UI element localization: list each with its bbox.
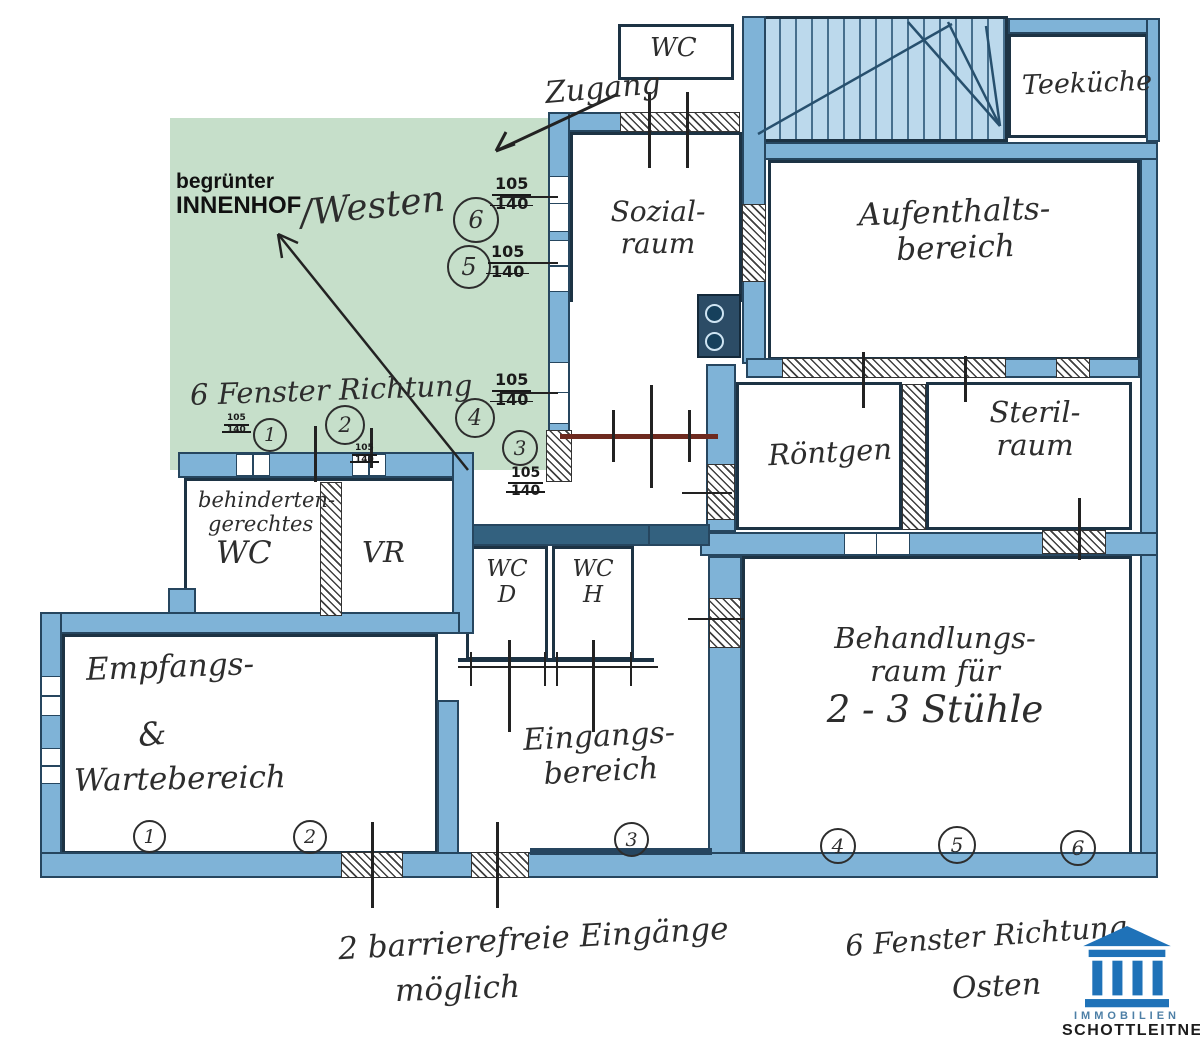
corridor-tick-3 [688,410,691,462]
wall-vr-right [452,452,474,634]
window1-axis [314,426,317,482]
marker-2: 2 [293,820,327,854]
entrance-axis-1 [371,822,374,908]
wall-below-stairs [746,142,1158,160]
wcdh-axis-2 [592,640,595,732]
window-dim-n2: 105 140 [352,444,377,466]
temple-icon [1081,926,1173,1010]
wall-roentgen-steril [902,384,926,530]
window-marker-4: 4 [455,398,495,438]
door-sozial-aufenthalt [742,204,766,282]
courtyard-label-line2: INNENHOF [176,193,301,219]
zugang-axis-2 [686,92,689,168]
wall-sozial-aufenthalt [742,16,766,364]
window-marker-n2: 2 [325,405,365,445]
marker-1: 1 [133,820,166,853]
window-empfang-left-2 [41,748,61,784]
eingang-label: Eingangs- bereich [488,714,711,794]
sozialraum-label: Sozial- raum [578,196,738,260]
behandlung-dim [688,618,744,620]
wc-top-label: WC [650,34,697,64]
window-marker-3: 3 [502,430,538,466]
empfang-label-line2: Wartebereich [74,760,286,799]
ost-note-line2: Osten [951,968,1042,1007]
wall-wcvr-top [178,452,456,478]
corridor-tick-2 [650,385,653,488]
window-empfang-left-1 [41,676,61,716]
window-dim-3: 105 140 [508,466,543,498]
logo-line2: SCHOTTLEITNER [1062,1022,1192,1040]
marker-5: 5 [938,826,976,864]
wall-outer-right [1140,158,1158,878]
empfang-label-line1: Empfangs- [85,647,254,688]
steril-axis [1078,498,1081,560]
door-behandlung [709,598,741,648]
barrier-note-line2: möglich [394,970,520,1010]
door-steril-bottom [1042,530,1106,554]
vr-label: VR [362,536,405,569]
kitchen-unit [697,294,741,358]
wall-eingang-top [648,524,710,546]
wall-empfang-left [40,612,62,878]
zugang-axis-1 [648,92,651,168]
wcdh-tick-d [630,652,632,686]
entrance-axis-2 [496,822,499,908]
markup-red-line [560,434,718,439]
staircase [746,16,1008,142]
entrance-opening-2 [471,852,529,878]
opening-zugang [620,112,740,132]
brand-logo: IMMOBILIEN SCHOTTLEITNER [1062,926,1192,1040]
barrier-note-line1: 2 barrierefreie Eingänge [337,912,729,968]
wall-empfang-eingang [437,700,459,854]
door-corridor-right [1056,358,1090,378]
floor-plan: Zugang begrünter INNENHOF /Westen 6 Fens… [0,0,1200,1054]
wcdh-dim-line [458,666,658,668]
wc-h-label: WC H [558,556,628,609]
wall-wc-dh-top [460,524,652,546]
burner-icon [705,304,724,323]
marker-6: 6 [1060,830,1096,866]
window-dim-n1: 105 140 [224,414,249,436]
logo-line1: IMMOBILIEN [1062,1010,1192,1022]
courtyard-label-line1: begrünter [176,170,274,193]
window-dim-5: 105 140 [488,244,527,281]
wall-empfang-top [40,612,460,634]
roentgen-dim [682,492,732,494]
behandlung-label: Behandlungs- raum für 2 - 3 Stühle [770,622,1100,731]
window-marker-n1: 1 [253,418,287,452]
wcdh-tick-a [470,652,472,686]
wall-stub [168,588,196,614]
wcdh-axis-1 [508,640,511,732]
wc-beh-label: behinderten- gerechtes WC [198,488,335,572]
window-marker-5: 5 [447,245,491,289]
zugang-label: Zugang [544,67,662,111]
marker-4: 4 [820,828,856,864]
window-nord-1 [236,454,270,476]
burner-icon [705,332,724,351]
teekueche-label: Teeküche [1021,66,1152,102]
window-mid [844,533,910,555]
wall-west [548,112,570,480]
wcdh-tick-c [556,652,558,686]
wc-d-label: WC D [472,556,542,609]
aufenthalt-axis-1 [862,352,865,408]
window-aufenthalt-bottom [782,358,1006,378]
roentgen-label: Röntgen [767,433,893,473]
window-dim-4: 105 140 [492,372,531,409]
marker-3: 3 [614,822,649,857]
corridor-tick-1 [612,410,615,462]
wcdh-tick-b [544,652,546,686]
empfang-label-amp: & [136,715,168,755]
window-west-5 [549,240,569,292]
aufenthalt-label: Aufenthalts- bereich [789,189,1121,272]
window-dim-6: 105 140 [492,176,531,213]
window-west-6 [549,176,569,232]
wall-teekueche-top [1008,18,1158,34]
wall-outer-bottom [40,852,1158,878]
steril-label: Steril- raum [960,396,1110,463]
